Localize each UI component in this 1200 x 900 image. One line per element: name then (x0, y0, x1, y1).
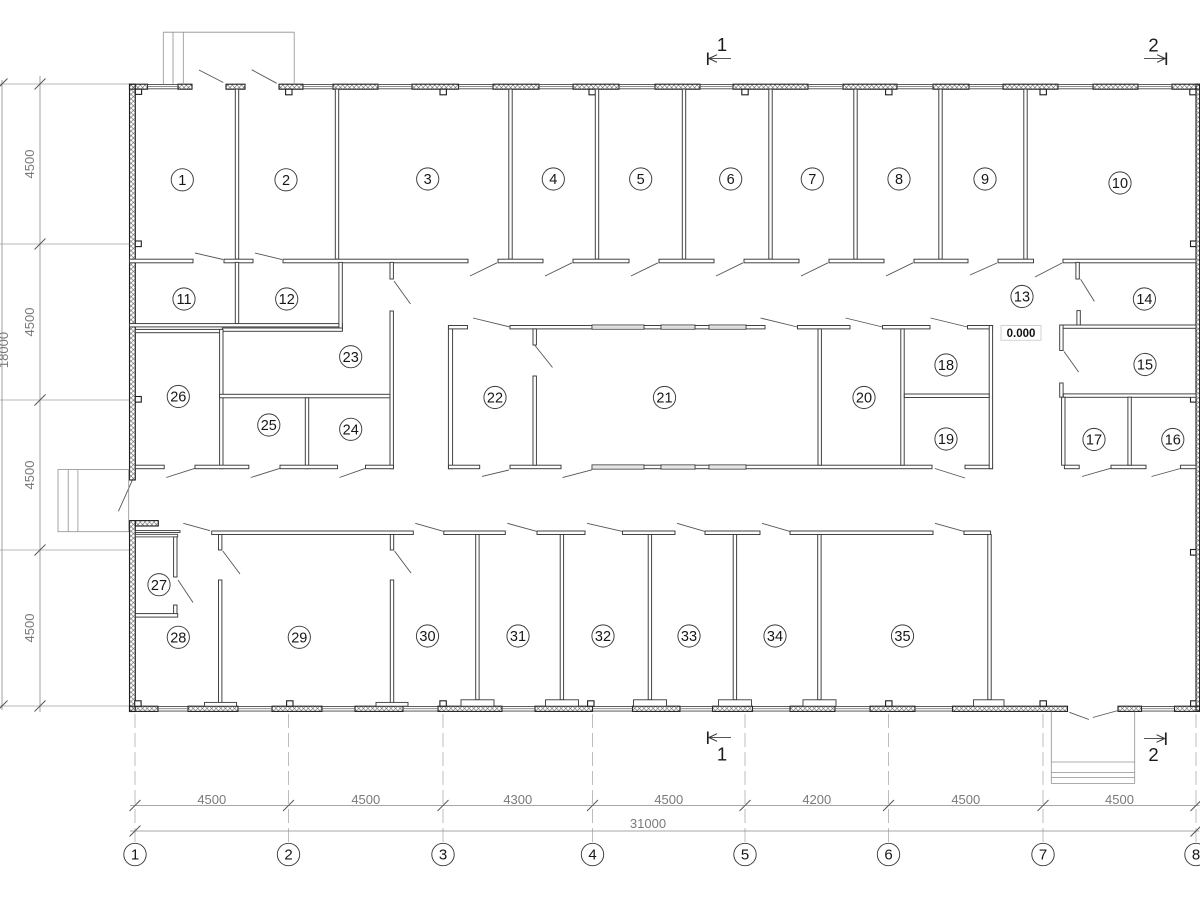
svg-text:15: 15 (1137, 358, 1153, 374)
svg-text:1: 1 (717, 744, 727, 765)
svg-text:4500: 4500 (197, 792, 226, 807)
svg-text:13: 13 (1014, 290, 1030, 306)
svg-text:2: 2 (282, 173, 290, 189)
svg-text:2: 2 (1148, 744, 1158, 765)
svg-text:26: 26 (170, 390, 186, 406)
svg-text:16: 16 (1165, 433, 1181, 449)
svg-text:30: 30 (419, 629, 435, 645)
svg-text:25: 25 (261, 418, 277, 434)
svg-text:31: 31 (510, 629, 526, 645)
svg-text:17: 17 (1086, 433, 1102, 449)
svg-text:28: 28 (170, 631, 186, 647)
svg-text:4500: 4500 (951, 792, 980, 807)
svg-text:24: 24 (343, 423, 359, 439)
svg-text:10: 10 (1112, 176, 1128, 192)
svg-text:3: 3 (439, 847, 447, 864)
svg-text:14: 14 (1136, 292, 1152, 308)
svg-text:12: 12 (279, 292, 295, 308)
svg-text:34: 34 (767, 629, 783, 645)
svg-text:18: 18 (938, 358, 954, 374)
svg-text:4500: 4500 (1105, 792, 1134, 807)
svg-text:1: 1 (178, 173, 186, 189)
svg-text:3: 3 (424, 172, 432, 188)
svg-text:22: 22 (487, 391, 503, 407)
svg-text:7: 7 (1039, 847, 1047, 864)
svg-text:1: 1 (717, 34, 727, 55)
svg-text:4500: 4500 (22, 614, 37, 643)
svg-text:4500: 4500 (351, 792, 380, 807)
svg-text:1: 1 (131, 847, 139, 864)
svg-text:33: 33 (681, 629, 697, 645)
svg-text:9: 9 (981, 172, 989, 188)
svg-text:27: 27 (151, 578, 167, 594)
svg-text:2: 2 (284, 847, 292, 864)
svg-text:23: 23 (343, 350, 359, 366)
svg-text:8: 8 (1192, 847, 1200, 864)
svg-text:31000: 31000 (630, 816, 666, 831)
svg-text:6: 6 (727, 172, 735, 188)
svg-text:4: 4 (588, 847, 596, 864)
svg-text:4200: 4200 (802, 792, 831, 807)
svg-text:35: 35 (894, 629, 910, 645)
svg-text:21: 21 (656, 391, 672, 407)
svg-text:4500: 4500 (654, 792, 683, 807)
svg-text:19: 19 (938, 432, 954, 448)
svg-text:32: 32 (595, 629, 611, 645)
svg-text:4500: 4500 (22, 461, 37, 490)
svg-text:5: 5 (741, 847, 749, 864)
svg-text:0.000: 0.000 (1007, 328, 1036, 340)
svg-text:8: 8 (895, 172, 903, 188)
svg-text:11: 11 (176, 292, 191, 308)
svg-text:4500: 4500 (22, 308, 37, 337)
svg-text:6: 6 (884, 847, 892, 864)
svg-text:20: 20 (856, 391, 872, 407)
svg-text:5: 5 (637, 172, 645, 188)
svg-text:7: 7 (808, 172, 816, 188)
svg-text:29: 29 (291, 631, 307, 647)
svg-text:4500: 4500 (22, 150, 37, 179)
svg-text:4: 4 (549, 172, 557, 188)
svg-text:2: 2 (1148, 35, 1158, 56)
svg-text:18000: 18000 (0, 332, 11, 368)
svg-text:4300: 4300 (503, 792, 532, 807)
